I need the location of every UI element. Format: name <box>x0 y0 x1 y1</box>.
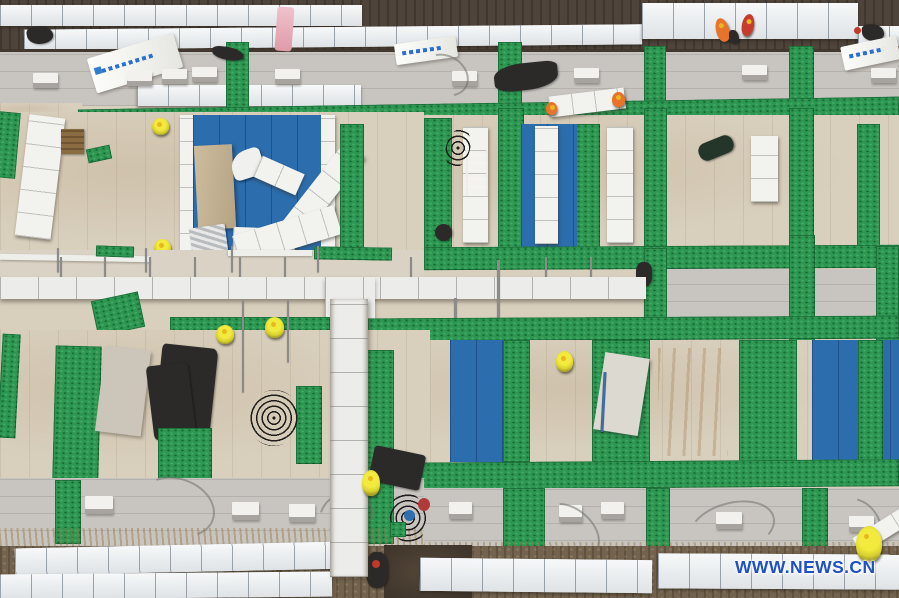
construction-site-aerial-photo: WWW.NEWS.CN <box>0 0 899 598</box>
hanger-rod <box>284 257 286 277</box>
green-walkway-strip <box>296 386 322 464</box>
osb-board-stack <box>194 144 236 230</box>
green-mat-piece <box>314 246 392 260</box>
roof-vent <box>742 65 767 80</box>
worker <box>152 118 169 135</box>
worker <box>216 325 234 344</box>
corridor-duct-column <box>330 299 368 577</box>
banner-text-mark <box>101 53 156 73</box>
pink-flag <box>274 6 294 51</box>
worker <box>546 102 557 115</box>
roof-vent <box>162 69 187 84</box>
corridor-duct-beam <box>0 277 646 299</box>
white-panel-stack <box>535 126 558 244</box>
green-walkway-strip <box>644 108 667 248</box>
scaffold-pole <box>317 246 319 272</box>
green-walkway-strip <box>503 340 530 462</box>
hanger-rod <box>410 257 412 277</box>
guard-rail <box>228 250 312 256</box>
wood-pallet <box>61 129 84 154</box>
blue-panel-column <box>450 340 503 462</box>
footing-block-row <box>420 558 652 593</box>
blue-bucket <box>404 510 415 521</box>
worker <box>556 351 573 372</box>
roof-vent <box>85 496 113 514</box>
white-panel-stack <box>607 127 633 243</box>
green-walkway-strip <box>52 345 101 480</box>
roof-vent <box>232 502 259 520</box>
roof-tile-row <box>0 5 362 26</box>
green-walkway-strip <box>858 340 883 462</box>
roof-vent <box>33 73 58 88</box>
green-walkway-strip <box>340 124 364 252</box>
ladder <box>466 150 488 196</box>
green-walkway-strip <box>644 46 666 108</box>
green-walkway-strip <box>857 124 880 248</box>
roof-vent <box>574 68 599 83</box>
roof-vent <box>289 504 315 522</box>
hanger-rod <box>149 257 151 277</box>
green-walkway-strip <box>739 340 797 462</box>
scaffold-pole <box>231 246 233 272</box>
hanger-rod <box>60 257 62 277</box>
green-walkway-band <box>390 459 899 490</box>
scaffold-pole <box>145 248 147 272</box>
bucket <box>435 224 452 241</box>
green-mat-piece <box>96 245 134 257</box>
red-bucket <box>418 498 430 511</box>
green-mat-piece <box>390 522 406 537</box>
worker <box>612 92 625 107</box>
roof-plank-row <box>643 269 899 319</box>
scaffold-pole <box>242 300 244 392</box>
roof-vent <box>275 69 300 84</box>
worker <box>265 317 284 338</box>
tool-bag <box>729 30 739 44</box>
worker <box>362 470 380 496</box>
news-agency-watermark: WWW.NEWS.CN <box>735 557 876 578</box>
roof-vent <box>449 502 472 519</box>
worker <box>366 552 388 588</box>
blue-panel-column <box>812 340 899 462</box>
roof-vent <box>127 71 152 86</box>
mud-streaks <box>658 348 728 456</box>
white-panel-stack <box>751 136 778 202</box>
scaffold-pole <box>57 248 59 272</box>
hanger-rod <box>545 257 547 277</box>
green-walkway-band <box>368 316 899 342</box>
banner-text-mark <box>849 47 884 58</box>
hanger-rod <box>239 257 241 277</box>
green-walkway-strip <box>789 108 814 248</box>
hanger-rod <box>194 257 196 277</box>
roof-module-row <box>137 85 361 106</box>
scaffold-pole <box>287 300 289 362</box>
red-bucket <box>854 27 861 34</box>
hanger-rod <box>104 257 106 277</box>
roof-vent <box>192 67 217 82</box>
roof-vent <box>601 502 624 519</box>
green-walkway-strip <box>575 124 600 248</box>
red-vest-detail <box>372 560 380 568</box>
hanger-rod <box>590 257 592 277</box>
footing-block-row <box>0 572 332 598</box>
